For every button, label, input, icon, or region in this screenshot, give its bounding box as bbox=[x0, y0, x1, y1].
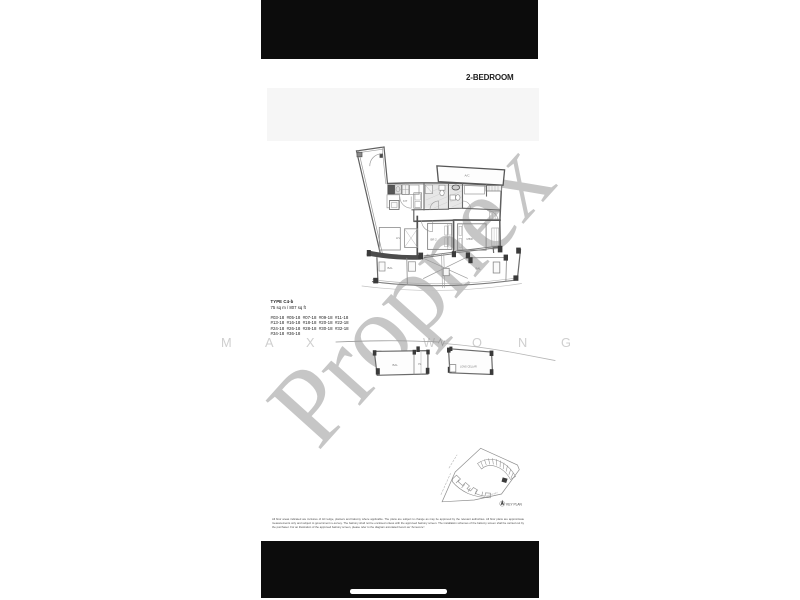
svg-text:LONG CELLAR: LONG CELLAR bbox=[460, 366, 477, 369]
svg-text:PL: PL bbox=[418, 362, 422, 366]
svg-text:A/C: A/C bbox=[465, 174, 471, 178]
svg-text:BAL: BAL bbox=[393, 363, 399, 367]
svg-text:KEY PLAN: KEY PLAN bbox=[506, 503, 522, 507]
svg-text:BAL: BAL bbox=[476, 267, 482, 271]
svg-text:MARINA WAY: MARINA WAY bbox=[485, 491, 499, 498]
svg-text:BR 2: BR 2 bbox=[431, 238, 438, 242]
svg-text:MBR: MBR bbox=[467, 237, 473, 241]
svg-text:LIV: LIV bbox=[396, 236, 400, 240]
svg-text:KIT: KIT bbox=[403, 199, 408, 203]
svg-text:BAL: BAL bbox=[388, 266, 394, 270]
